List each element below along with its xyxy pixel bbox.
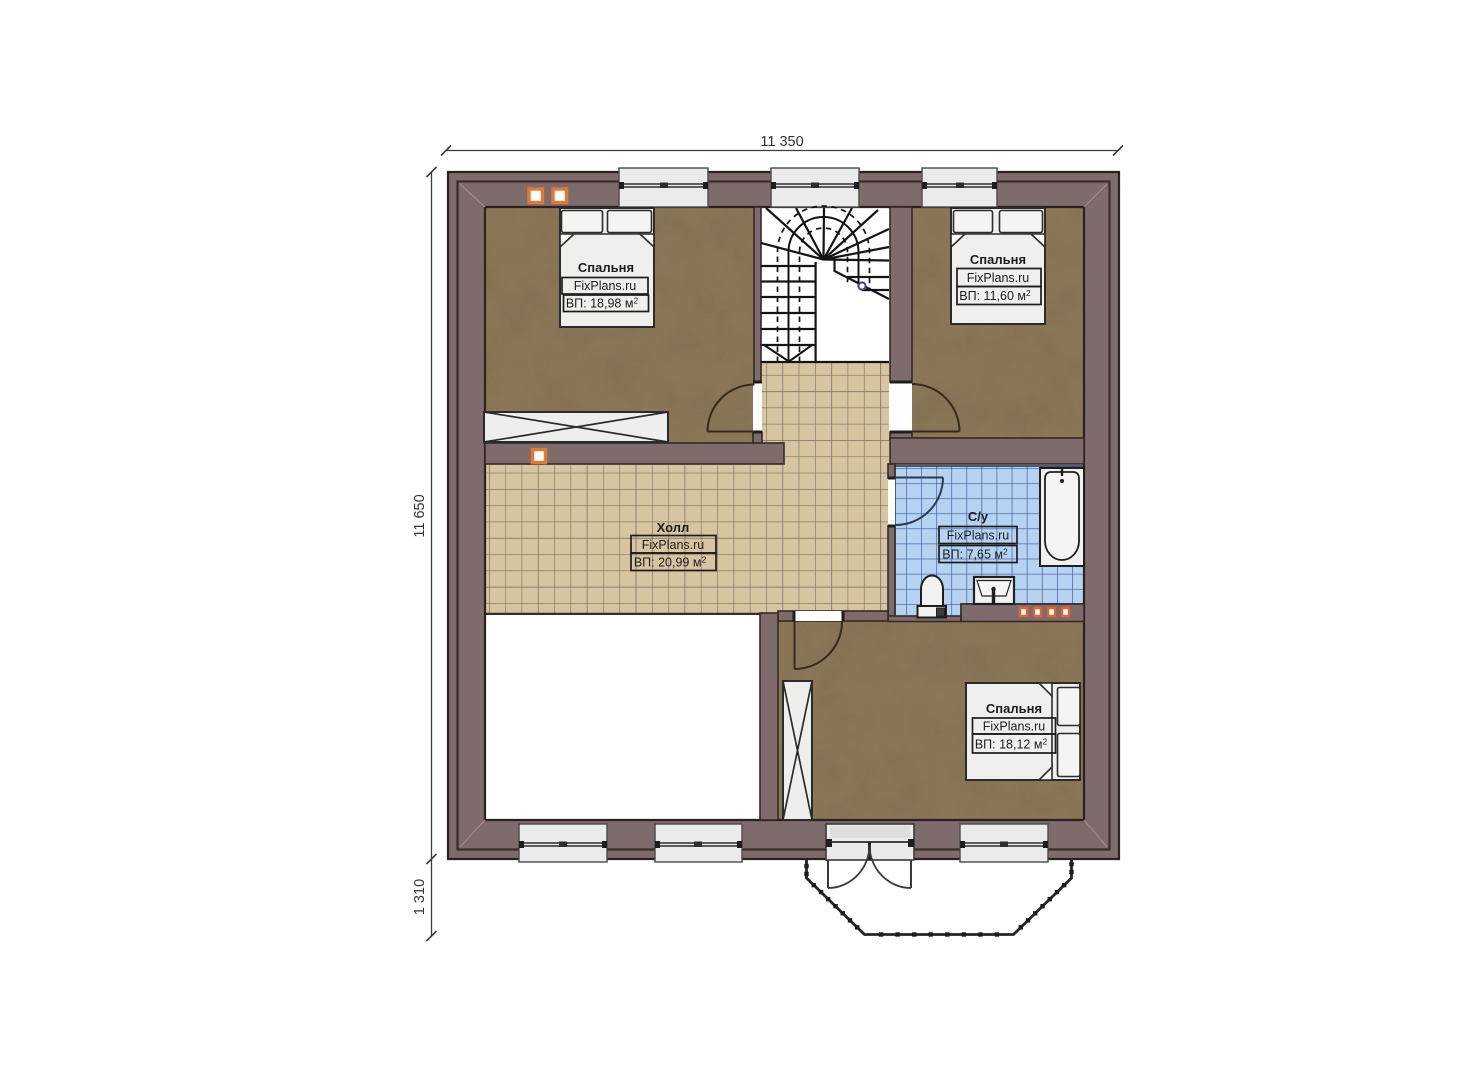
svg-text:ВП: 18,12 м2: ВП: 18,12 м2 (975, 737, 1048, 752)
svg-text:ВП: 18,98 м2: ВП: 18,98 м2 (566, 296, 639, 311)
svg-text:ВП: 11,60 м2: ВП: 11,60 м2 (959, 288, 1031, 303)
svg-text:Спальня: Спальня (970, 252, 1026, 267)
svg-text:FixPlans.ru: FixPlans.ru (947, 529, 1010, 543)
svg-text:Спальня: Спальня (578, 260, 634, 275)
svg-text:1 310: 1 310 (412, 879, 428, 915)
svg-text:ВП: 7,65 м2: ВП: 7,65 м2 (942, 547, 1008, 562)
svg-text:11 350: 11 350 (760, 134, 803, 150)
svg-text:FixPlans.ru: FixPlans.ru (574, 279, 637, 293)
svg-text:FixPlans.ru: FixPlans.ru (983, 720, 1046, 734)
svg-text:С/у: С/у (968, 509, 989, 524)
svg-text:FixPlans.ru: FixPlans.ru (967, 271, 1030, 285)
svg-text:Холл: Холл (657, 520, 690, 535)
svg-text:Спальня: Спальня (986, 701, 1042, 716)
svg-text:FixPlans.ru: FixPlans.ru (642, 538, 705, 552)
svg-text:ВП: 20,99 м2: ВП: 20,99 м2 (634, 555, 707, 570)
svg-text:11 650: 11 650 (412, 494, 428, 537)
